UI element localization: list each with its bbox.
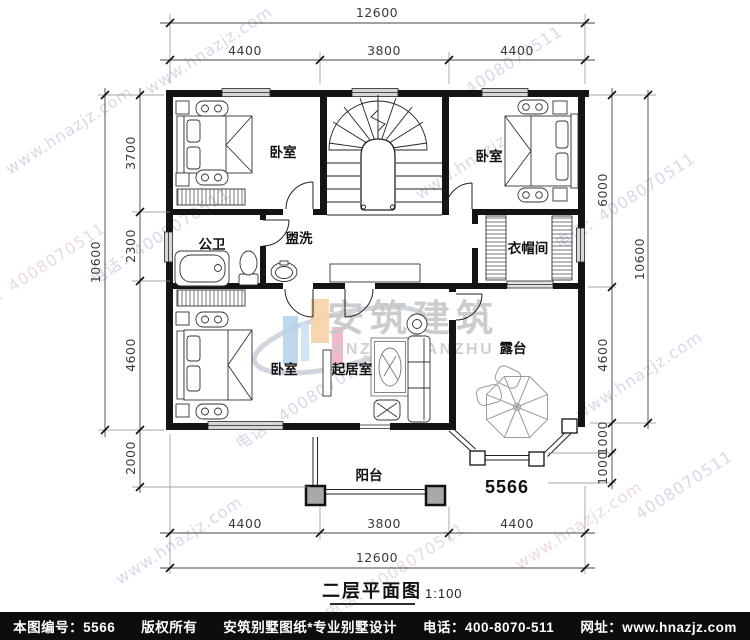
counter (330, 264, 420, 282)
dim-top-2: 3800 (367, 43, 401, 58)
dim-right-4: 1000 (595, 451, 610, 485)
columns (306, 419, 577, 505)
room-label-bedroom-tl: 卧室 (270, 144, 297, 160)
room-label-bedroom-tr: 卧室 (476, 148, 503, 164)
dim-right-2: 4600 (595, 338, 610, 372)
bed (177, 330, 252, 400)
bedside-mat (518, 188, 548, 202)
toilet (239, 251, 258, 285)
dim-left-total: 10600 (88, 241, 103, 283)
dim-bottom-2: 3800 (367, 516, 401, 531)
dim-top-total: 12600 (356, 5, 398, 20)
terrace-post (529, 452, 544, 466)
drawing-title: 二层平面图 (322, 581, 422, 601)
room-label-terrace: 露台 (500, 340, 527, 356)
balcony-column (426, 486, 445, 505)
nightstand (176, 173, 189, 186)
dim-top-3: 4400 (500, 43, 534, 58)
pedestal-sink (271, 261, 297, 282)
dim-bottom-total: 12600 (356, 550, 398, 565)
dim-right-total: 10600 (632, 238, 647, 280)
dim-left-3: 4600 (123, 338, 138, 372)
rug (371, 338, 409, 396)
wardrobe (177, 189, 245, 205)
footer-phone: 电话：400-8070-511 (423, 616, 554, 636)
nightstand (553, 188, 567, 201)
dim-left-1: 3700 (123, 136, 138, 170)
bathtub (175, 251, 229, 286)
stool (374, 400, 400, 420)
footer-company: 安筑别墅图纸*专业别墅设计 (223, 616, 397, 636)
tv-cabinet (323, 350, 331, 396)
bedside-mat (196, 170, 228, 185)
nightstand (176, 312, 189, 325)
watermark-text: www.hnazjz.com (572, 327, 706, 423)
floor-plan-sheet: www.hnazjz.com 电话：4008070511 www.hnazjz.… (0, 0, 750, 640)
room-label-bedroom-bl: 卧室 (271, 361, 298, 377)
watermark-text: 4008070511 (632, 447, 736, 524)
room-label-bath: 公卫 (199, 237, 226, 252)
dim-bottom-1: 4400 (228, 516, 262, 531)
wardrobe (486, 216, 506, 280)
side-table (407, 314, 427, 334)
terrace-post (562, 419, 577, 433)
bedside-mat (196, 101, 228, 116)
room-label-living: 起居室 (331, 361, 373, 377)
watermark-text: www.hnazjz.com (2, 82, 136, 178)
terrace-post (470, 451, 485, 465)
dim-right-1: 6000 (595, 173, 610, 207)
wardrobe (177, 290, 245, 306)
bedside-mat (518, 100, 548, 114)
dim-left-4: 2000 (123, 441, 138, 475)
nightstand (553, 101, 567, 114)
watermark-text: www.hnazjz.com (112, 492, 246, 588)
room-label-cloakroom: 衣帽间 (508, 240, 549, 256)
bed (505, 114, 578, 188)
sofa (408, 336, 430, 422)
dim-bottom-3: 4400 (500, 516, 534, 531)
drawing-scale: 1:100 (425, 586, 463, 601)
bed (177, 116, 252, 173)
room-label-wash: 盥洗 (286, 230, 313, 246)
dim-top-1: 4400 (228, 43, 262, 58)
dim-right-3: 1000 (595, 421, 610, 455)
dim-left-2: 2300 (123, 229, 138, 263)
bedside-mat (196, 404, 228, 419)
footer-bar: 本图编号：5566 版权所有 安筑别墅图纸*专业别墅设计 电话：400-8070… (0, 612, 750, 640)
room-label-balcony: 阳台 (356, 467, 383, 483)
nightstand (176, 101, 189, 114)
floor-plan-drawing: www.hnazjz.com 电话：4008070511 www.hnazjz.… (0, 0, 750, 612)
plan-number: 5566 (485, 477, 529, 497)
footer-website: 网址：www.hnazjz.com (580, 616, 737, 636)
terrace-furniture (475, 364, 547, 438)
footer-drawing-number: 本图编号：5566 (13, 616, 115, 636)
drawing-title-block: 二层平面图 1:100 (322, 581, 463, 604)
balcony-column (306, 486, 325, 505)
nightstand (176, 404, 189, 417)
wardrobe (552, 216, 572, 280)
footer-copyright: 版权所有 (141, 616, 197, 636)
bedside-mat (196, 312, 228, 327)
